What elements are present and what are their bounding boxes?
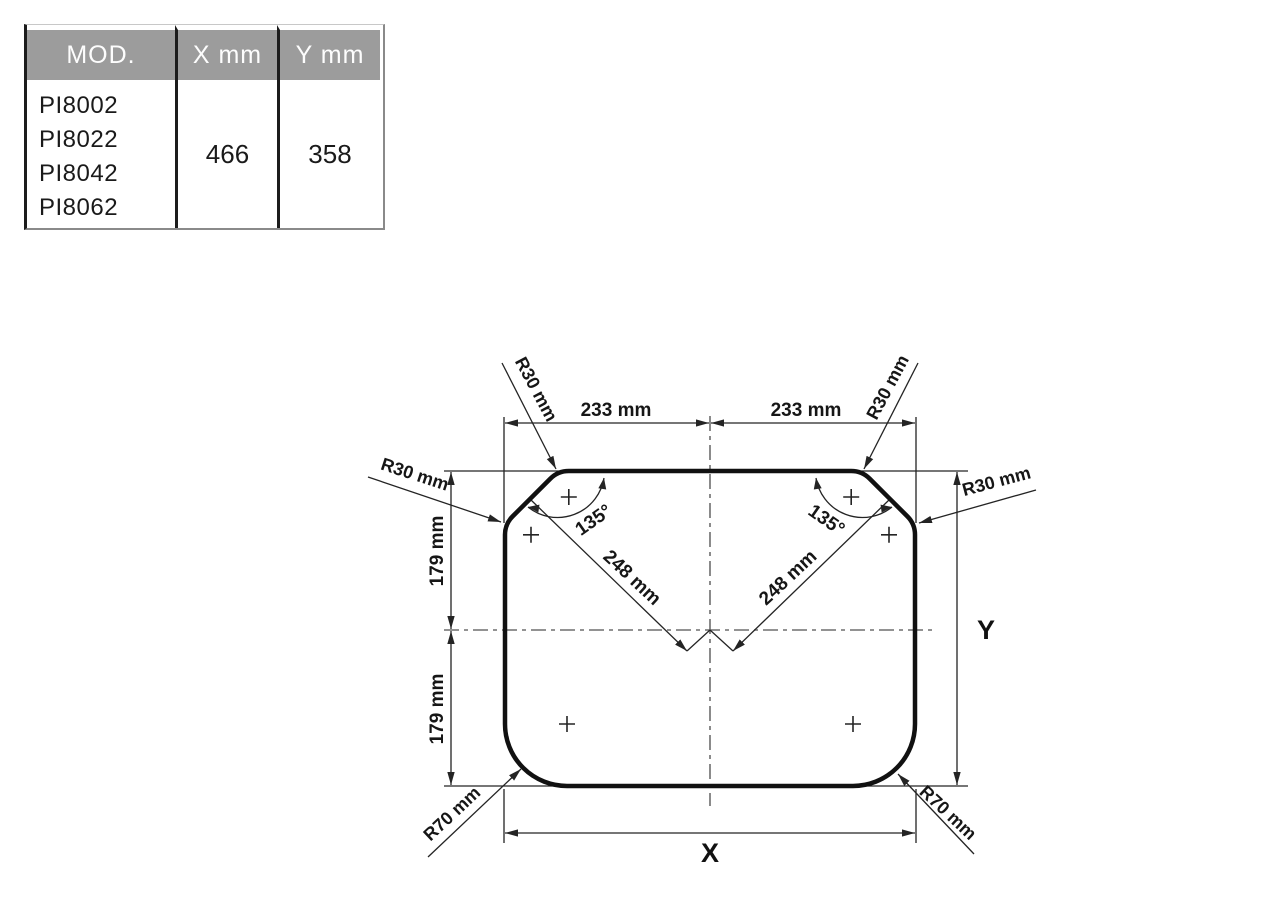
center-mark (559, 716, 575, 732)
dim-label-248-right: 248 mm (755, 546, 821, 610)
dimension-jog-left (687, 630, 710, 651)
dim-label-179-upper: 179 mm (427, 516, 448, 587)
radius-label-r30-left: R30 mm (378, 454, 451, 495)
dim-label-248-left: 248 mm (599, 546, 665, 610)
center-mark (523, 527, 539, 543)
angle-label-left: 135° (572, 501, 616, 541)
center-mark (561, 489, 577, 505)
spec-sheet-page: MOD. X mm Y mm PI8002 PI8022 PI8042 PI80… (0, 0, 1280, 910)
angle-label-right: 135° (804, 501, 848, 541)
axis-label-y: Y (977, 615, 995, 645)
technical-drawing: 233 mm 233 mm 179 mm 179 mm 248 mm 248 m… (0, 0, 1280, 910)
dim-label-233-left: 233 mm (581, 400, 652, 421)
radius-label-r70-bottom-right: R70 mm (916, 781, 981, 843)
radius-label-r30-top-left: R30 mm (511, 354, 562, 425)
axis-label-x: X (701, 838, 719, 868)
center-mark (881, 527, 897, 543)
dimension-jog-right (710, 630, 733, 651)
center-mark (845, 716, 861, 732)
dim-label-233-right: 233 mm (771, 400, 842, 421)
dim-label-179-lower: 179 mm (427, 674, 448, 745)
center-mark (843, 489, 859, 505)
